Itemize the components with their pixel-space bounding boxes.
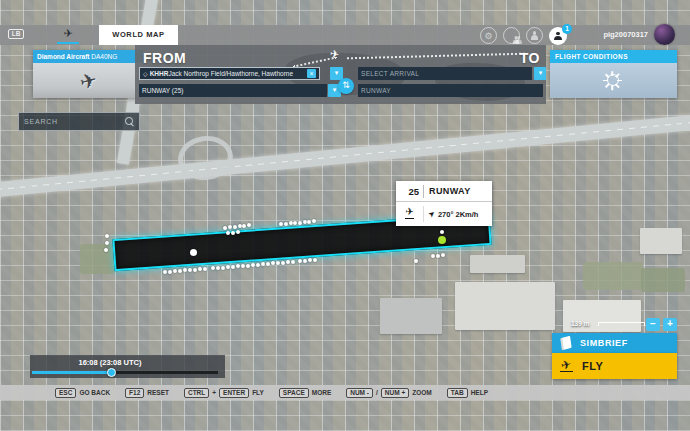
parking-spot-dot[interactable] — [276, 261, 280, 265]
parking-spot-dot[interactable] — [312, 219, 316, 223]
route-arc — [347, 53, 525, 60]
flight-planner-panel: FROM TO ✈ ◇ KHHR Jack Northrop Field/Haw… — [135, 45, 546, 104]
aircraft-title: Diamond Aircraft DA40NG — [33, 50, 143, 63]
time-slider-box: 16:08 (23:08 UTC) — [30, 355, 225, 378]
zoom-out-button[interactable]: − — [646, 318, 660, 331]
selected-spawn-dot[interactable] — [438, 236, 446, 244]
parking-spot-dot[interactable] — [198, 267, 202, 271]
search-input[interactable] — [24, 118, 125, 125]
parking-spot-dot[interactable] — [261, 262, 265, 266]
parking-spot-dot[interactable] — [279, 222, 283, 226]
ctrl-keycap: CTRL — [184, 388, 209, 398]
runway-number: 25 — [396, 185, 424, 198]
sun-icon — [607, 74, 619, 86]
esc-keycap: ESC — [55, 388, 76, 398]
parking-spot-dot[interactable] — [303, 259, 307, 263]
parking-spot-dot[interactable] — [440, 230, 444, 234]
runway-tooltip: 25 RUNWAY ✈ ➤ 270° 2Km/h — [396, 181, 492, 226]
swap-from-to-button[interactable]: ⇅ — [338, 78, 354, 94]
parking-spot-dot[interactable] — [216, 266, 220, 270]
hint-reset: F12 RESET — [125, 388, 169, 398]
f12-keycap: F12 — [125, 388, 144, 398]
parking-spot-dot[interactable] — [284, 222, 288, 226]
parking-spot-dot[interactable] — [266, 262, 270, 266]
parking-spot-dot[interactable] — [271, 261, 275, 265]
parking-spot-dot[interactable] — [188, 268, 192, 272]
top-bar: LB ✈ WORLD MAP ⚙ 1 pig20070317 — [0, 25, 690, 45]
parking-spot-dot[interactable] — [242, 224, 246, 228]
search-icon[interactable] — [125, 117, 134, 126]
departure-airport-field[interactable]: ◇ KHHR Jack Northrop Field/Hawthorne, Ha… — [139, 67, 320, 80]
takeoff-icon: ✈ — [560, 360, 573, 373]
parking-spot-dot[interactable] — [286, 260, 290, 264]
home-plane-icon[interactable]: ✈ — [57, 26, 79, 40]
parking-spot-dot[interactable] — [173, 269, 177, 273]
parking-spot-dot[interactable] — [308, 258, 312, 262]
num-minus-keycap: NUM - — [346, 388, 373, 398]
arrival-runway-field[interactable]: RUNWAY — [358, 84, 543, 97]
parking-spot-dot[interactable] — [281, 261, 285, 265]
tab-world-map[interactable]: WORLD MAP — [99, 25, 178, 45]
key-hints-bar: ESC GO BACK F12 RESET CTRL + ENTER FLY S… — [0, 385, 690, 400]
parking-spot-dot[interactable] — [190, 249, 197, 256]
parking-spot-dot[interactable] — [431, 254, 435, 258]
map-scale-label: 139 m — [571, 320, 589, 327]
arrival-airport-field[interactable]: SELECT ARRIVAL — [358, 67, 532, 80]
avatar[interactable] — [654, 24, 675, 45]
space-keycap: SPACE — [279, 388, 309, 398]
enter-keycap: ENTER — [219, 388, 249, 398]
tab-keycap: TAB — [447, 388, 468, 398]
hint-zoom: NUM - / NUM + ZOOM — [346, 388, 432, 398]
parking-spot-dot[interactable] — [291, 260, 295, 264]
runway-label: RUNWAY — [424, 186, 471, 196]
departure-runway-field[interactable]: RUNWAY (25) — [139, 84, 327, 97]
time-slider-handle[interactable] — [107, 368, 116, 377]
hint-go-back: ESC GO BACK — [55, 388, 110, 398]
parking-spot-dot[interactable] — [211, 266, 215, 270]
parking-spot-dot[interactable] — [221, 266, 225, 270]
parking-spot-dot[interactable] — [236, 264, 240, 268]
fly-button[interactable]: ✈ FLY — [552, 353, 677, 379]
num-plus-keycap: NUM + — [381, 388, 409, 398]
map-search-box[interactable] — [18, 112, 140, 131]
parking-spot-dot[interactable] — [436, 254, 440, 258]
settings-gear-icon[interactable]: ⚙ — [480, 27, 497, 44]
parking-spot-dot[interactable] — [226, 231, 230, 235]
hint-help: TAB HELP — [447, 388, 488, 398]
username: pig20070317 — [586, 30, 648, 39]
parking-spot-dot[interactable] — [307, 220, 311, 224]
parking-spot-dot[interactable] — [298, 259, 302, 263]
parking-spot-dot[interactable] — [414, 259, 418, 263]
notebook-icon — [560, 336, 571, 350]
from-label: FROM — [143, 50, 186, 66]
parking-spot-dot[interactable] — [236, 230, 240, 234]
parking-spot-dot[interactable] — [246, 264, 250, 268]
parking-spot-dot[interactable] — [193, 268, 197, 272]
lb-shoulder-button-hint: LB — [8, 29, 24, 39]
selected-aircraft-card[interactable]: Diamond Aircraft DA40NG ✈ — [33, 50, 143, 98]
parking-spot-dot[interactable] — [233, 225, 237, 229]
parking-spot-dot[interactable] — [226, 265, 230, 269]
parking-spot-dot[interactable] — [241, 264, 245, 268]
parking-spot-dot[interactable] — [247, 223, 251, 227]
wind-value: 270° 2Km/h — [438, 210, 479, 219]
parking-spot-dot[interactable] — [105, 241, 109, 245]
parking-spot-dot[interactable] — [104, 248, 108, 252]
waypoint-diamond-icon: ◇ — [143, 70, 148, 77]
time-slider-progress — [32, 371, 112, 374]
parking-spot-dot[interactable] — [441, 253, 445, 257]
parking-spot-dot[interactable] — [251, 263, 255, 267]
parking-spot-dot[interactable] — [231, 231, 235, 235]
parking-spot-dot[interactable] — [223, 226, 227, 230]
parking-spot-dot[interactable] — [313, 258, 317, 262]
parking-spot-dot[interactable] — [256, 263, 260, 267]
departure-airport-name: Jack Northrop Field/Hawthorne, Hawthorne — [168, 70, 293, 77]
parking-spot-dot[interactable] — [298, 221, 302, 225]
map-scale-bar — [598, 322, 645, 326]
parking-spot-dot[interactable] — [105, 234, 109, 238]
aircraft-silhouette-icon: ✈ — [77, 67, 99, 94]
notification-count-badge: 1 — [562, 24, 572, 34]
flight-conditions-title: FLIGHT CONDITIONS — [550, 50, 677, 63]
friends-group-icon[interactable] — [503, 27, 520, 44]
wind-direction-icon: ➤ — [427, 209, 437, 219]
hint-more: SPACE MORE — [279, 388, 331, 398]
flight-conditions-panel[interactable]: FLIGHT CONDITIONS — [550, 50, 677, 98]
weather-preview — [550, 63, 677, 98]
active-tab-underline — [57, 42, 79, 44]
clear-departure-button[interactable]: × — [307, 69, 316, 78]
parking-spot-dot[interactable] — [183, 268, 187, 272]
profile-person-icon[interactable] — [526, 27, 543, 44]
time-label: 16:08 (23:08 UTC) — [30, 358, 190, 367]
parking-spot-dot[interactable] — [163, 270, 167, 274]
simbrief-button[interactable]: SIMBRIEF — [552, 333, 677, 353]
aircraft-photo: ✈ — [33, 63, 143, 98]
parking-spot-dot[interactable] — [231, 265, 235, 269]
parking-spot-dot[interactable] — [228, 225, 232, 229]
route-plane-icon: ✈ — [329, 47, 340, 61]
simbrief-label: SIMBRIEF — [580, 338, 628, 348]
departure-icao: KHHR — [150, 70, 169, 77]
arrival-dropdown-chevron[interactable]: ▾ — [534, 67, 546, 80]
parking-spot-dot[interactable] — [178, 269, 182, 273]
parking-spot-dot[interactable] — [293, 221, 297, 225]
parking-spot-dot[interactable] — [203, 267, 207, 271]
parking-spot-dot[interactable] — [168, 270, 172, 274]
takeoff-icon: ✈ — [396, 206, 424, 222]
fly-label: FLY — [582, 360, 603, 372]
hint-fly: CTRL + ENTER FLY — [184, 388, 264, 398]
zoom-in-button[interactable]: + — [663, 318, 677, 331]
